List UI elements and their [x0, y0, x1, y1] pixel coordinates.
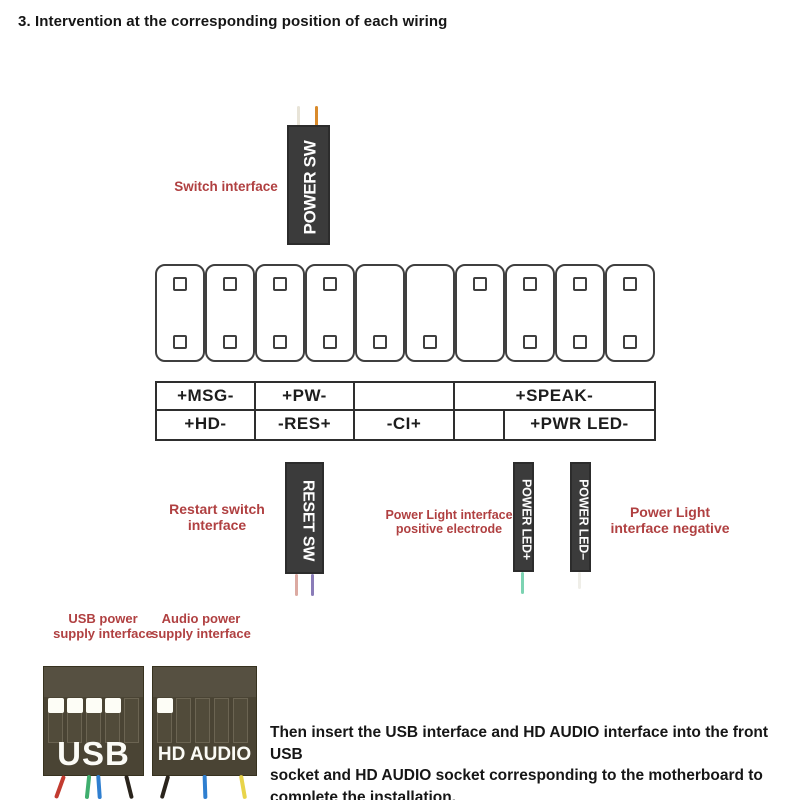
power-led-minus-label: POWER LED– [572, 464, 593, 574]
pin-square [523, 335, 537, 349]
pin-table-cell: +HD- [157, 411, 256, 439]
connector-slot [176, 698, 191, 743]
pin-connector [155, 264, 205, 362]
connector-slot [214, 698, 229, 743]
pin-square [323, 277, 337, 291]
restart-interface-label: Restart switch interface [158, 502, 276, 533]
usb-power-line2: supply interface [48, 627, 158, 642]
usb-block-label: USB [44, 735, 143, 773]
pin-connector [355, 264, 405, 362]
pin-square [223, 277, 237, 291]
hd-audio-slot-row [157, 698, 248, 743]
pin-connector [205, 264, 255, 362]
pin-square [423, 335, 437, 349]
pin-square [573, 277, 587, 291]
pin-table-row-top: +MSG-+PW-+SPEAK- [157, 383, 654, 411]
power-led-plus-connector: POWER LED+ [513, 462, 534, 572]
audio-power-line2: supply interface [146, 627, 256, 642]
pin-connector [505, 264, 555, 362]
pin-connector [255, 264, 305, 362]
footer-line1: Then insert the USB interface and HD AUD… [270, 722, 782, 765]
wire-pin [105, 698, 121, 713]
power-led-plus-label: POWER LED+ [515, 464, 536, 574]
pin-connector [555, 264, 605, 362]
usb-connector-block: USB [43, 666, 144, 776]
audio-power-label: Audio power supply interface [146, 612, 256, 641]
pin-square [373, 335, 387, 349]
restart-interface-line2: interface [158, 518, 276, 534]
page-title: 3. Intervention at the corresponding pos… [18, 13, 447, 30]
power-light-negative-line2: interface negative [600, 521, 740, 537]
connector-slot [157, 698, 172, 743]
usb-wire-blue [96, 775, 102, 799]
audio-power-line1: Audio power [146, 612, 256, 627]
power-led-plus-wire [521, 572, 524, 594]
pin-table-cell: +PWR LED- [505, 411, 654, 439]
pin-table-cell: -RES+ [256, 411, 355, 439]
pin-square [173, 277, 187, 291]
reset-sw-wire-pink [295, 574, 298, 596]
hd-audio-wire-yellow [239, 775, 247, 799]
pin-table-cell [455, 411, 505, 439]
power-light-positive-line1: Power Light interface [385, 508, 513, 522]
wire-pin [48, 698, 64, 713]
wire-pin [67, 698, 83, 713]
pin-square [323, 335, 337, 349]
pin-square [523, 277, 537, 291]
pin-table-cell: +MSG- [157, 383, 256, 409]
pin-square [573, 335, 587, 349]
pin-square [623, 277, 637, 291]
power-sw-connector: POWER SW [287, 125, 330, 245]
switch-interface-label: Switch interface [172, 179, 280, 194]
footer-line2: socket and HD AUDIO socket corresponding… [270, 765, 782, 787]
hd-audio-wire-blue [203, 775, 208, 799]
reset-sw-label: RESET SW [287, 464, 326, 576]
pin-table-cell [355, 383, 455, 409]
reset-sw-wire-purple [311, 574, 314, 596]
power-sw-wire-white [297, 106, 300, 127]
pin-connector [455, 264, 505, 362]
hd-audio-connector-block: HD AUDIO [152, 666, 257, 776]
pin-table-cell: +PW- [256, 383, 355, 409]
power-led-minus-connector: POWER LED– [570, 462, 591, 572]
power-light-negative-line1: Power Light [600, 505, 740, 521]
hd-audio-wire-black [160, 775, 170, 799]
restart-interface-line1: Restart switch [158, 502, 276, 518]
connector-slot [195, 698, 210, 743]
wire-pin [86, 698, 102, 713]
power-light-positive-label: Power Light interface positive electrode [385, 508, 513, 536]
pin-connector [605, 264, 655, 362]
power-sw-label: POWER SW [289, 127, 332, 247]
pin-connector [305, 264, 355, 362]
power-sw-wire-orange [315, 106, 318, 127]
pin-square [173, 335, 187, 349]
usb-wire-black [124, 775, 134, 799]
power-light-negative-label: Power Light interface negative [600, 505, 740, 536]
wiring-diagram: 3. Intervention at the corresponding pos… [0, 0, 800, 800]
pin-square [473, 277, 487, 291]
footer-line3: complete the installation. [270, 787, 782, 800]
reset-sw-connector: RESET SW [285, 462, 324, 574]
usb-power-label: USB power supply interface [48, 612, 158, 641]
pin-table-row-bottom: +HD--RES+-CI++PWR LED- [157, 411, 654, 439]
pin-square [623, 335, 637, 349]
usb-wire-red [54, 775, 66, 799]
pin-table: +MSG-+PW-+SPEAK- +HD--RES+-CI++PWR LED- [155, 381, 656, 441]
usb-power-line1: USB power [48, 612, 158, 627]
pin-square [273, 335, 287, 349]
power-led-minus-wire [578, 572, 581, 589]
power-light-positive-line2: positive electrode [385, 522, 513, 536]
pin-square [273, 277, 287, 291]
pin-square [223, 335, 237, 349]
hd-audio-block-label: HD AUDIO [153, 744, 256, 766]
pin-connector [405, 264, 455, 362]
connector-slot [233, 698, 248, 743]
pin-table-cell: -CI+ [355, 411, 455, 439]
usb-wire-green [85, 775, 91, 799]
pin-header-row [155, 264, 655, 362]
wire-pin [157, 698, 173, 713]
pin-table-cell: +SPEAK- [455, 383, 654, 409]
footer-instruction: Then insert the USB interface and HD AUD… [270, 722, 782, 800]
